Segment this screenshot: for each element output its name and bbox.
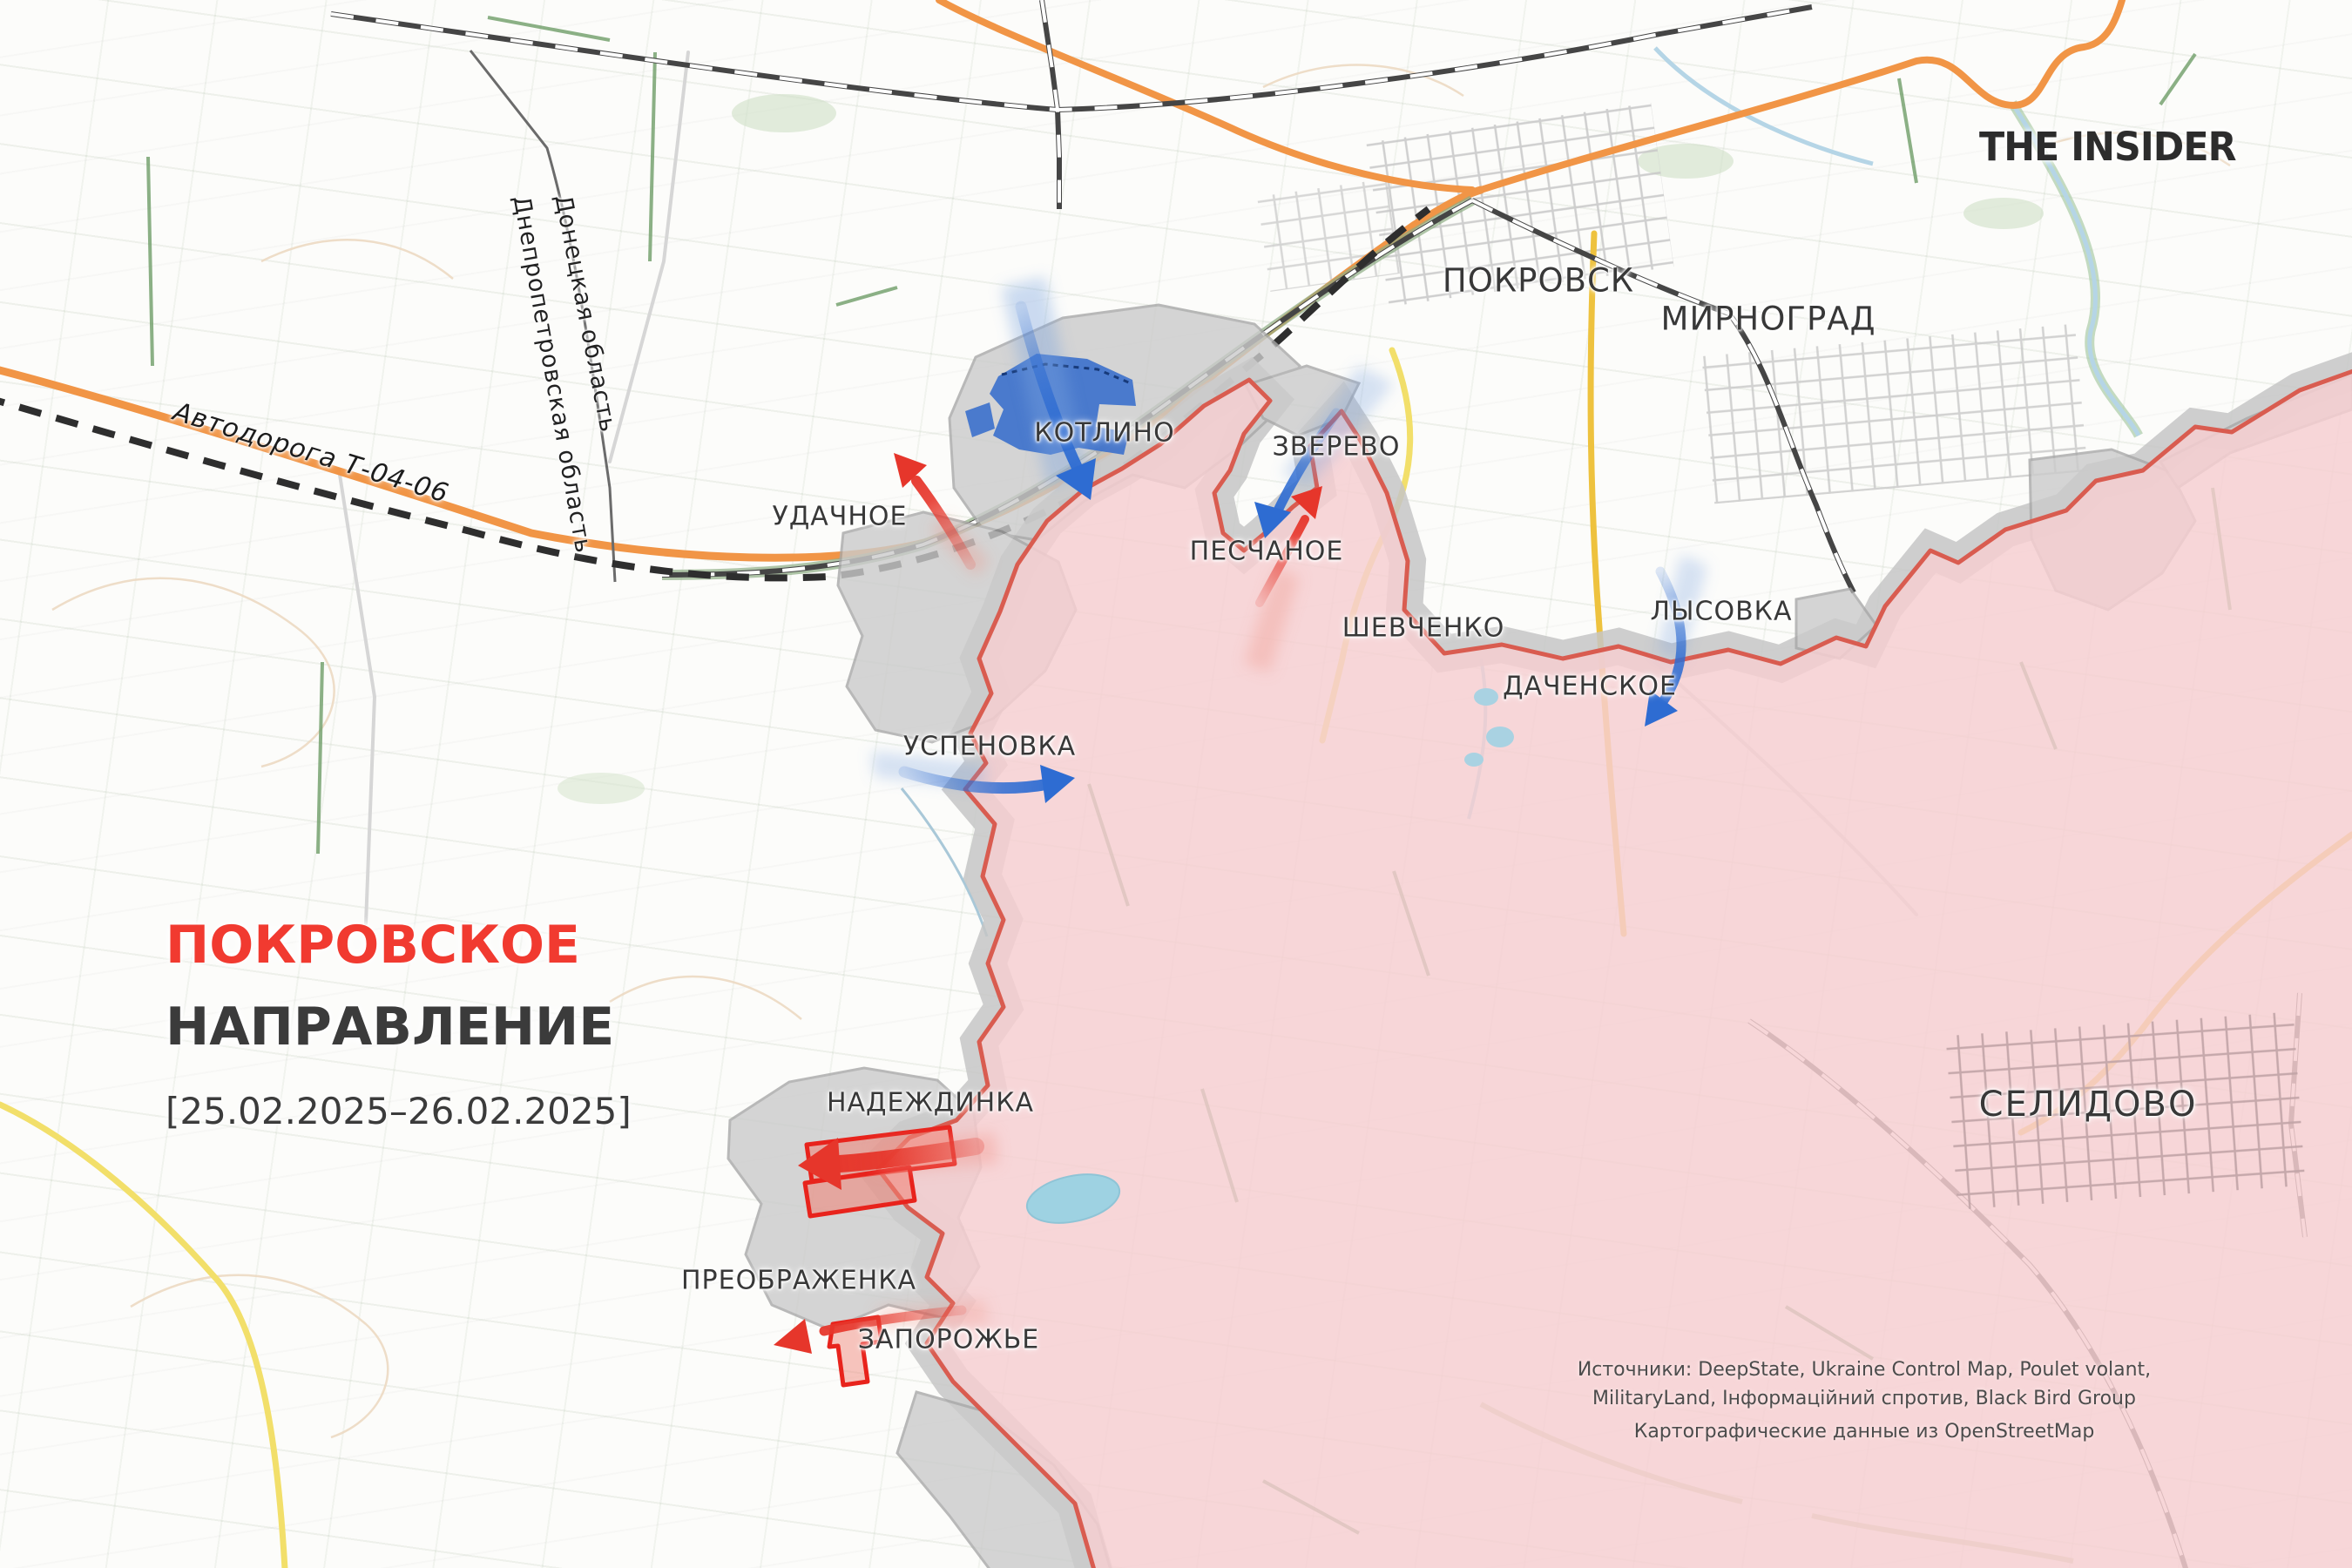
- city-label-lysivka: ЛЫСОВКА: [1651, 597, 1793, 627]
- city-label-uspenivka: УСПЕНОВКА: [903, 732, 1076, 762]
- city-label-nadiyivka: НАДЕЖДИНКА: [827, 1088, 1034, 1119]
- city-label-zaporizhzhia: ЗАПОРОЖЬЕ: [858, 1325, 1039, 1355]
- city-label-preobrazhenka: ПРЕОБРАЖЕНКА: [681, 1266, 916, 1296]
- sources-line-1: Источники: DeepState, Ukraine Control Ma…: [1542, 1355, 2186, 1384]
- title-date-range: [25.02.2025–26.02.2025]: [166, 1093, 632, 1130]
- title-line-1: ПОКРОВСКОЕ: [166, 919, 632, 971]
- title-block: ПОКРОВСКОЕ НАПРАВЛЕНИЕ [25.02.2025–26.02…: [166, 919, 632, 1130]
- city-label-shevchenko: ШЕВЧЕНКО: [1342, 613, 1505, 644]
- the-insider-logo: THE INSIDER: [1979, 124, 2236, 170]
- city-label-kotlyne: КОТЛИНО: [1034, 418, 1174, 449]
- map-artwork: [0, 0, 2352, 1568]
- map-canvas: ПОКРОВСК МИРНОГРАД КОТЛИНО ЗВЕРЕВО УДАЧН…: [0, 0, 2352, 1568]
- city-label-myrnohrad: МИРНОГРАД: [1661, 301, 1876, 338]
- sources-block: Источники: DeepState, Ukraine Control Ma…: [1542, 1355, 2186, 1446]
- city-label-dachenske: ДАЧЕНСКОЕ: [1503, 672, 1677, 702]
- city-label-zvirove: ЗВЕРЕВО: [1272, 432, 1400, 463]
- city-label-pischane: ПЕСЧАНОЕ: [1190, 537, 1344, 567]
- sources-line-2: MilitaryLand, Інформаційний спротив, Bla…: [1542, 1384, 2186, 1413]
- city-label-udachne: УДАЧНОЕ: [773, 502, 908, 532]
- sources-line-3: Картографические данные из OpenStreetMap: [1542, 1417, 2186, 1446]
- city-label-selydove: СЕЛИДОВО: [1979, 1085, 2198, 1125]
- city-label-pokrovsk: ПОКРОВСК: [1443, 262, 1634, 300]
- title-line-2: НАПРАВЛЕНИЕ: [166, 1001, 632, 1053]
